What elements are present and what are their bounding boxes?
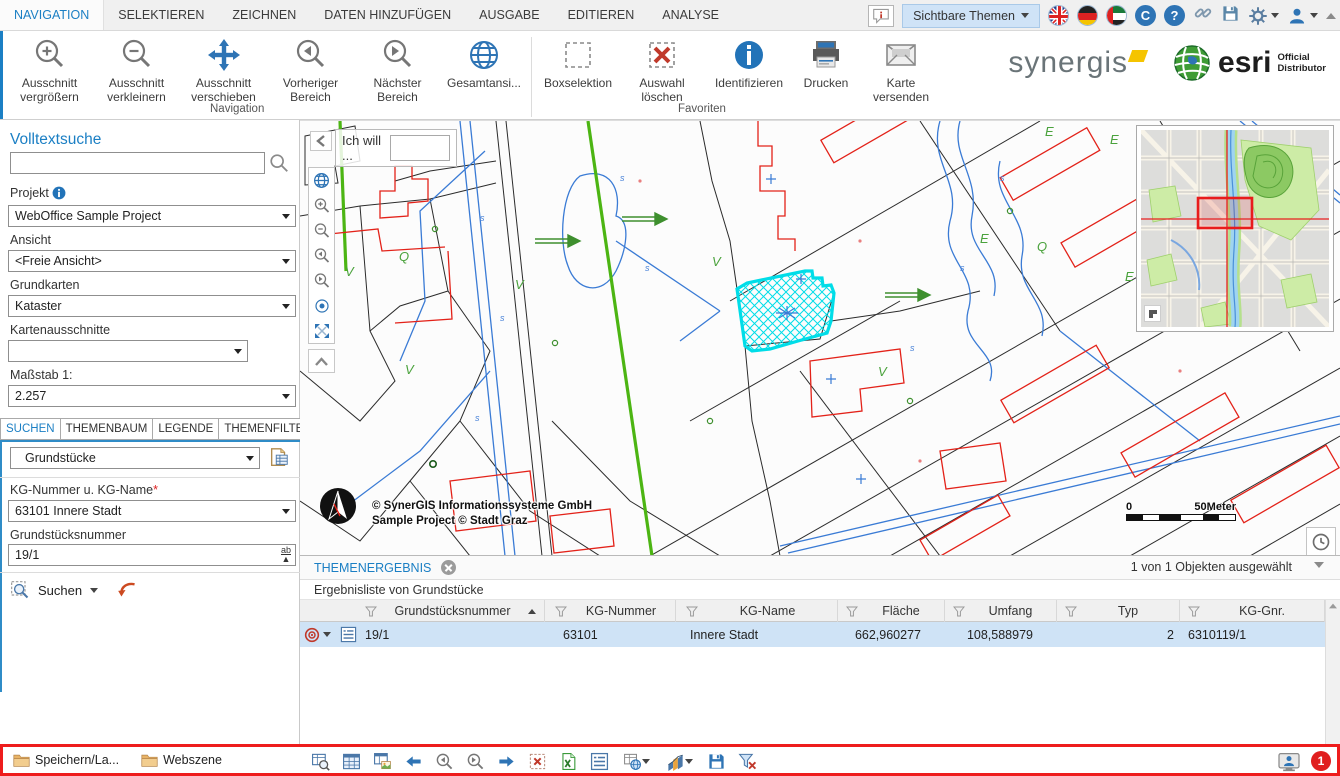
north-arrow-icon xyxy=(320,488,356,524)
filter-icon[interactable] xyxy=(365,606,377,617)
ich-will-input[interactable] xyxy=(390,135,450,161)
button-label: Vorheriger xyxy=(283,76,338,90)
button-label: Ausschnitt xyxy=(109,76,164,90)
menu-tab-editieren[interactable]: EDITIEREN xyxy=(554,0,649,30)
zoom-in-button[interactable]: Ausschnitt vergrößern xyxy=(6,35,93,117)
ansicht-select[interactable]: <Freie Ansicht> xyxy=(8,250,296,272)
show-result-table-icon[interactable] xyxy=(308,750,332,772)
synergis-logo-diamond xyxy=(1128,50,1148,62)
chevron-down-icon xyxy=(1310,13,1318,18)
crescent-glyph: C xyxy=(1141,8,1150,23)
map-center-icon[interactable] xyxy=(309,293,334,318)
result-table-header: Grundstücksnummer KG-Nummer KG-Name Fläc… xyxy=(300,600,1340,622)
tab-suchen[interactable]: SUCHEN xyxy=(0,418,61,440)
chevron-down-icon xyxy=(246,456,254,461)
svg-text:s: s xyxy=(960,263,965,273)
required-asterisk: * xyxy=(153,483,158,497)
svg-text:Q: Q xyxy=(399,249,409,264)
svg-text:E: E xyxy=(1125,269,1134,284)
info-icon[interactable] xyxy=(52,186,66,200)
column-grundstuecksnummer[interactable]: Grundstücksnummer xyxy=(355,600,545,622)
map-previous-extent-icon[interactable] xyxy=(309,243,334,268)
sichtbare-themen-label: Sichtbare Themen xyxy=(913,9,1015,23)
filter-icon[interactable] xyxy=(555,606,567,617)
chevron-down-icon xyxy=(282,214,290,219)
svg-text:s: s xyxy=(620,173,625,183)
ribbon-separator xyxy=(531,37,532,117)
menu-tab-daten-hinzufuegen[interactable]: DATEN HINZUFÜGEN xyxy=(310,0,465,30)
column-kg-name[interactable]: KG-Name xyxy=(676,600,838,622)
button-label: Bereich xyxy=(377,90,418,104)
result-toolbar xyxy=(308,750,759,772)
reset-icon[interactable] xyxy=(118,581,138,599)
kartenausschnitte-select[interactable] xyxy=(8,340,248,362)
first-result-icon[interactable] xyxy=(401,750,425,772)
cell-kg-name: Innere Stadt xyxy=(676,622,838,647)
scale-min-label: 0 xyxy=(1126,501,1132,513)
svg-text:E: E xyxy=(1110,132,1119,147)
column-umfang[interactable]: Umfang xyxy=(945,600,1057,622)
filter-icon[interactable] xyxy=(846,606,858,617)
selection-info: 1 von 1 Objekten ausgewählt xyxy=(1131,560,1292,574)
highlight-target-icon xyxy=(304,627,320,643)
cell-umfang: 108,588979 xyxy=(945,622,1057,647)
suchen-label: Suchen xyxy=(38,583,82,598)
column-typ[interactable]: Typ xyxy=(1057,600,1180,622)
synergis-logo: synergis xyxy=(1008,46,1146,80)
button-label: vergrößern xyxy=(20,90,79,104)
svg-text:V: V xyxy=(515,277,525,292)
overview-collapse-icon[interactable] xyxy=(1144,305,1161,322)
button-label: Bereich xyxy=(290,90,331,104)
chevron-down-icon xyxy=(234,349,242,354)
massstab-select[interactable]: 2.257 xyxy=(8,385,296,407)
svg-text:V: V xyxy=(345,264,355,279)
button-label: Gesamtansi... xyxy=(447,76,521,90)
svg-text:s: s xyxy=(480,213,485,223)
button-label: Boxselektion xyxy=(544,76,612,90)
collapse-sidebar-button[interactable] xyxy=(310,131,332,151)
suchen-button[interactable]: Suchen xyxy=(10,580,138,600)
filter-icon[interactable] xyxy=(953,606,965,617)
map-zoom-out-icon[interactable] xyxy=(309,218,334,243)
divider xyxy=(0,572,300,573)
sichtbare-themen-button[interactable]: Sichtbare Themen xyxy=(902,4,1040,28)
esri-logo-text: esri xyxy=(1218,49,1271,77)
gnr-input[interactable]: 19/1 ab▲▼ xyxy=(8,544,296,566)
send-map-button[interactable]: Karte versenden xyxy=(858,35,944,117)
svg-text:s: s xyxy=(910,343,915,353)
result-row[interactable]: 19/1 63101 Innere Stadt 662,960277 108,5… xyxy=(300,622,1340,647)
table-globe-menu[interactable] xyxy=(618,750,654,772)
ansicht-label: Ansicht xyxy=(10,233,51,247)
cell-kg-nummer: 63101 xyxy=(545,622,676,647)
close-results-icon[interactable] xyxy=(441,560,456,575)
menu-tab-zeichnen[interactable]: ZEICHNEN xyxy=(218,0,310,30)
column-kg-nummer[interactable]: KG-Nummer xyxy=(545,600,676,622)
table-report-icon[interactable] xyxy=(370,750,394,772)
statusbar-item-webszene[interactable]: Webszene xyxy=(141,753,222,767)
svg-text:s: s xyxy=(475,413,480,423)
esri-logo: esri OfficialDistributor xyxy=(1172,43,1326,83)
grundkarten-label: Grundkarten xyxy=(10,278,79,292)
results-scrollbar[interactable] xyxy=(1325,600,1340,745)
active-tab-indicator xyxy=(0,31,3,119)
menu-tab-ausgabe[interactable]: AUSGABE xyxy=(465,0,553,30)
print-button[interactable]: Drucken xyxy=(794,35,858,117)
menu-tab-selektieren[interactable]: SELEKTIEREN xyxy=(104,0,218,30)
map-toolbar xyxy=(308,167,335,344)
settings-button[interactable] xyxy=(1248,6,1279,26)
scale-bar: 0 50Meter xyxy=(1126,501,1236,521)
history-clock-button[interactable] xyxy=(1306,527,1336,555)
button-label: verkleinern xyxy=(107,90,166,104)
map-next-extent-icon[interactable] xyxy=(309,268,334,293)
search-icon[interactable] xyxy=(268,152,290,179)
collapse-map-toolbar-button[interactable] xyxy=(308,349,335,373)
kartenausschnitte-label: Kartenausschnitte xyxy=(10,323,110,337)
excel-export-icon[interactable] xyxy=(556,750,580,772)
last-result-icon[interactable] xyxy=(494,750,518,772)
map-view[interactable]: VQVVVVEEEEQEssssssss Ich wi xyxy=(300,120,1340,555)
folder-icon xyxy=(141,753,158,767)
chevron-down-icon xyxy=(282,394,290,399)
question-glyph: ? xyxy=(1171,8,1179,23)
column-kg-gnr[interactable]: KG-Gnr. xyxy=(1180,600,1325,622)
grundkarten-select[interactable]: Kataster xyxy=(8,295,296,317)
button-label: Auswahl xyxy=(639,76,684,90)
help-icon[interactable]: ? xyxy=(1164,5,1185,26)
statusbar-item-speichern[interactable]: Speichern/La... xyxy=(13,753,119,767)
flag-germany-icon[interactable] xyxy=(1077,5,1098,26)
fulltext-search-input[interactable] xyxy=(10,152,265,174)
cell-typ: 2 xyxy=(1057,622,1180,647)
query-form-icon[interactable] xyxy=(268,446,290,473)
zoom-previous-result-icon[interactable] xyxy=(432,750,456,772)
previous-extent-button[interactable]: Vorheriger Bereich xyxy=(267,35,354,117)
gnr-label: Grundstücksnummer xyxy=(10,528,126,542)
save-state-icon[interactable] xyxy=(1221,4,1240,28)
projekt-select[interactable]: WebOffice Sample Project xyxy=(8,205,296,227)
session-monitor-icon[interactable] xyxy=(1277,752,1301,776)
kg-label: KG-Nummer u. KG-Name* xyxy=(10,483,158,497)
flag-uae-icon[interactable] xyxy=(1106,5,1127,26)
search-selection-icon xyxy=(10,580,30,600)
form-view-icon[interactable] xyxy=(587,750,611,772)
esri-globe-icon xyxy=(1172,43,1212,83)
tab-themenbaum[interactable]: THEMENBAUM xyxy=(61,418,154,440)
svg-text:E: E xyxy=(1045,124,1054,139)
full-extent-button[interactable]: Gesamtansi... xyxy=(441,35,527,117)
zoom-next-result-icon[interactable] xyxy=(463,750,487,772)
collapse-menu-icon[interactable] xyxy=(1326,13,1336,19)
chevron-down-icon xyxy=(282,304,290,309)
divider xyxy=(0,477,300,478)
projekt-label: Projekt xyxy=(10,186,66,200)
result-list-title: Ergebnisliste von Grundstücke xyxy=(300,580,1340,600)
button-label: versenden xyxy=(873,90,929,104)
zoom-out-button[interactable]: Ausschnitt verkleinern xyxy=(93,35,180,117)
row-target-button[interactable] xyxy=(304,622,340,647)
svg-text:s: s xyxy=(1000,173,1005,183)
cell-flaeche: 662,960277 xyxy=(838,622,945,647)
ich-will-widget[interactable]: Ich will ... xyxy=(335,129,457,167)
ribbon-toolbar: Ausschnitt vergrößern Ausschnitt verklei… xyxy=(0,31,1340,120)
box-selection-button[interactable]: Boxselektion xyxy=(536,35,620,117)
scroll-up-icon[interactable] xyxy=(1329,604,1337,609)
button-label: löschen xyxy=(641,90,682,104)
sidebar-tabbar: SUCHEN THEMENBAUM LEGENDE THEMENFILTER xyxy=(0,418,318,440)
active-panel-border xyxy=(0,440,300,442)
synergis-logo-text: synergis xyxy=(1008,46,1128,80)
kg-select[interactable]: 63101 Innere Stadt xyxy=(8,500,296,522)
map-fit-icon[interactable] xyxy=(309,318,334,343)
chevron-down-icon xyxy=(1271,13,1279,18)
tab-themenergebnis[interactable]: THEMENERGEBNIS xyxy=(314,561,431,575)
next-extent-button[interactable]: Nächster Bereich xyxy=(354,35,441,117)
svg-text:V: V xyxy=(405,362,415,377)
ich-will-label: Ich will ... xyxy=(342,133,384,163)
sort-asc-icon[interactable] xyxy=(528,609,536,614)
save-result-icon[interactable] xyxy=(704,750,728,772)
overview-map[interactable] xyxy=(1136,125,1334,332)
massstab-label: Maßstab 1: xyxy=(10,368,73,382)
flag-uk-icon[interactable] xyxy=(1048,5,1069,26)
filter-icon[interactable] xyxy=(1065,606,1077,617)
overview-map-image xyxy=(1141,130,1329,327)
button-label: Ausschnitt xyxy=(196,76,251,90)
notification-badge[interactable]: 1 xyxy=(1311,751,1331,771)
svg-text:E: E xyxy=(980,231,989,246)
button-label: Nächster xyxy=(373,76,421,90)
map-copyright: © SynerGIS Informationssysteme GmbH Samp… xyxy=(372,499,592,529)
svg-text:V: V xyxy=(878,364,888,379)
results-tabrow: THEMENERGEBNIS 1 von 1 Objekten ausgewäh… xyxy=(300,556,1340,580)
collapse-results-icon[interactable] xyxy=(1314,562,1324,568)
svg-text:s: s xyxy=(500,313,505,323)
chevron-down-icon xyxy=(282,509,290,514)
weboffice-app: NAVIGATION SELEKTIEREN ZEICHNEN DATEN HI… xyxy=(0,0,1340,776)
chevron-down-icon xyxy=(642,759,650,764)
tab-legende[interactable]: LEGENDE xyxy=(153,418,219,440)
menu-right-controls: Sichtbare Themen C ? xyxy=(868,0,1336,31)
svg-text:s: s xyxy=(645,263,650,273)
chevron-down-icon xyxy=(90,588,98,593)
filter-icon[interactable] xyxy=(1188,606,1200,617)
chevron-down-icon xyxy=(282,259,290,264)
button-label: Drucken xyxy=(804,76,849,90)
folder-icon xyxy=(13,753,30,767)
button-label: verschieben xyxy=(191,90,256,104)
cell-grundstuecksnummer: 19/1 xyxy=(355,622,545,647)
fulltext-search-title: Volltextsuche xyxy=(10,131,101,149)
esri-sub-1: Official xyxy=(1277,52,1309,63)
menu-tab-analyse[interactable]: ANALYSE xyxy=(648,0,733,30)
menu-tab-navigation[interactable]: NAVIGATION xyxy=(0,0,104,30)
button-label: Identifizieren xyxy=(715,76,783,90)
remove-filter-icon[interactable] xyxy=(735,750,759,772)
suchthema-select[interactable]: Grundstücke xyxy=(10,447,260,469)
remove-selection-icon[interactable] xyxy=(525,750,549,772)
menu-bar: NAVIGATION SELEKTIEREN ZEICHNEN DATEN HI… xyxy=(0,0,1340,31)
column-flaeche[interactable]: Fläche xyxy=(838,600,945,622)
svg-text:Q: Q xyxy=(1037,239,1047,254)
svg-text:V: V xyxy=(712,254,722,269)
chevron-down-icon xyxy=(323,632,331,637)
esri-sub-2: Distributor xyxy=(1277,63,1326,74)
crescent-language-icon[interactable]: C xyxy=(1135,5,1156,26)
group-label-favoriten: Favoriten xyxy=(678,103,726,115)
button-label: Karte xyxy=(887,76,916,90)
map-zoom-in-icon[interactable] xyxy=(309,193,334,218)
share-link-icon[interactable] xyxy=(1193,3,1213,28)
chevron-down-icon xyxy=(1021,13,1029,18)
button-label: Ausschnitt xyxy=(22,76,77,90)
autocomplete-icon[interactable]: ab▲▼ xyxy=(281,546,291,566)
chart-3d-menu[interactable] xyxy=(661,750,697,772)
user-button[interactable] xyxy=(1287,6,1318,26)
cell-kg-gnr: 6310119/1 xyxy=(1180,622,1325,647)
scale-max-label: 50Meter xyxy=(1194,501,1236,513)
chevron-down-icon xyxy=(685,759,693,764)
map-full-extent-icon[interactable] xyxy=(309,168,334,193)
filter-icon[interactable] xyxy=(686,606,698,617)
info-bubble-icon[interactable] xyxy=(868,5,894,27)
status-bar: Speichern/La... Webszene 1 xyxy=(0,744,1340,776)
results-panel: THEMENERGEBNIS 1 von 1 Objekten ausgewäh… xyxy=(300,555,1340,744)
group-label-navigation: Navigation xyxy=(210,103,264,115)
left-sidebar: Volltextsuche Projekt WebOffice Sample P… xyxy=(0,120,300,744)
table-view-icon[interactable] xyxy=(339,750,363,772)
